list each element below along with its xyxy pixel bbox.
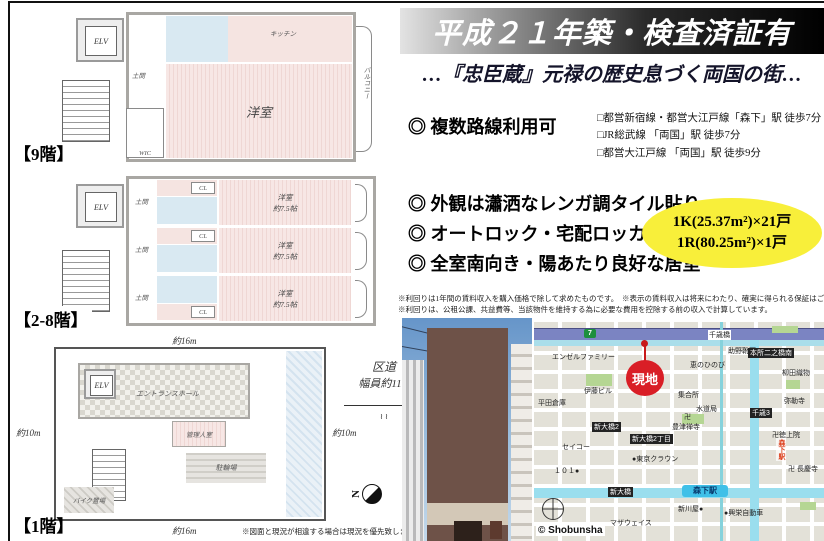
- room-name: 洋室: [278, 240, 293, 251]
- western-room: 洋室 約7.5帖: [219, 180, 351, 225]
- room-size: 約7.5帖: [273, 203, 297, 214]
- station-list: □都営新宿線・都営大江戸線「森下」駅 徒歩7分 □JR総武線 「両国」駅 徒歩7…: [597, 110, 821, 162]
- main-road-horizontal: [534, 488, 824, 498]
- bathroom-area: [166, 16, 228, 62]
- station-band-morishita: 森下駅: [682, 485, 728, 497]
- bicycle-parking-label: 駐輪場: [216, 463, 237, 473]
- western-room: 洋室 約7.5帖: [219, 228, 351, 273]
- room-name: 洋室: [278, 288, 293, 299]
- closet: CL: [191, 306, 215, 318]
- map-label: 本所二之橋南: [748, 348, 794, 358]
- map-label: １０１●: [554, 466, 579, 476]
- closet: CL: [191, 230, 215, 242]
- map-label: 平田倉庫: [538, 398, 566, 408]
- unit-row: 土間 CL 洋室 約7.5帖: [129, 228, 373, 273]
- closet-label: CL: [199, 233, 207, 240]
- disclaimer: ※利回りは1年間の賃料収入を購入価格で除して求めたものです。 ※表示の賃料収入は…: [398, 293, 824, 316]
- map-copyright: © Shobunsha: [536, 525, 605, 536]
- map-label: ●興栄自動車: [724, 508, 763, 518]
- north-label: N: [350, 490, 362, 498]
- map-label: 集合所: [678, 390, 699, 400]
- room-name: 洋室: [278, 192, 293, 203]
- feature-exterior: ◎ 外観は瀟洒なレンガ調タイル貼り: [408, 190, 701, 216]
- park-area: [586, 374, 612, 386]
- motorcycle-parking: バイク置場: [64, 487, 114, 513]
- western-room-label: 洋室: [246, 102, 272, 121]
- unit-mix-1r: 1R(80.25m²)×1戸: [677, 233, 787, 254]
- closet: CL: [191, 182, 215, 194]
- floorplan-1f: 約16m エントランスホール ELV 管理人室 駐輪場 バイク置場 約10m 約…: [14, 334, 424, 541]
- road-setback-area: [286, 351, 322, 517]
- manager-room-label: 管理人室: [186, 429, 212, 439]
- header-subtitle: …『忠臣蔵』元禄の歴史息づく両国の街…: [400, 58, 824, 87]
- neighbor-building-right: [511, 344, 532, 541]
- balcony: [355, 280, 367, 318]
- station-item: □都営大江戸線 「両国」駅 徒歩9分: [597, 145, 821, 162]
- station-item: □JR総武線 「両国」駅 徒歩7分: [597, 127, 821, 144]
- balcony-label: バルコニー: [360, 67, 370, 100]
- park-area: [800, 502, 816, 510]
- header-title: 平成２１年築・検査済証有: [432, 10, 792, 52]
- unit-row: 土間 CL 洋室 約7.5帖: [129, 276, 373, 321]
- map-label: 卍 長慶寺: [788, 464, 818, 474]
- site-pin-dot: [641, 340, 648, 347]
- bicycle-parking: 駐輪場: [186, 453, 266, 483]
- bathroom-area: [157, 197, 217, 224]
- elevator-shaft: ELV: [76, 184, 124, 228]
- manager-room: 管理人室: [172, 421, 226, 447]
- doma-label: 土間: [135, 292, 148, 302]
- floor2-8-caption: 【2-8階】: [14, 306, 92, 331]
- map-label: 新大橋: [608, 487, 633, 497]
- river: [534, 340, 824, 346]
- doma-label: 土間: [135, 196, 148, 206]
- map-label: エンゼルファミリー: [552, 352, 615, 362]
- map-label: 千歳3: [750, 408, 772, 418]
- map-label: 新大橋2: [592, 422, 621, 432]
- bathroom-area: [157, 245, 217, 272]
- disclaimer-line1: ※利回りは1年間の賃料収入を購入価格で除して求めたものです。 ※表示の賃料収入は…: [398, 293, 824, 304]
- north-arrow: N: [352, 484, 382, 504]
- compass-icon: [542, 498, 564, 520]
- unit-row: 土間 CL 洋室 約7.5帖: [129, 180, 373, 225]
- dimension-break: ≀ ≀: [377, 412, 391, 421]
- walk-in-closet: WIC: [126, 108, 164, 158]
- entrance-hall-label: エントランスホール: [136, 389, 199, 399]
- park-area: [786, 380, 800, 389]
- unit-mix-1k: 1K(25.37m²)×21戸: [673, 212, 791, 233]
- subway-line: [720, 322, 723, 541]
- building-photo: [402, 318, 532, 541]
- balcony: [355, 232, 367, 270]
- map-label: 卍: [684, 412, 691, 422]
- elevator-label: ELV: [85, 26, 117, 56]
- kitchen-label: キッチン: [270, 28, 296, 38]
- closet-label: CL: [199, 185, 207, 192]
- room-size: 約7.5帖: [273, 251, 297, 262]
- doma-label: 土間: [135, 244, 148, 254]
- station-vertical-morishita: 森下駅: [776, 438, 786, 461]
- elevator-shaft: ELV: [76, 18, 124, 62]
- balcony: [355, 184, 367, 222]
- real-estate-flyer: ELV キッチン 洋室 WIC 土間 バルコニー 【9階】 ELV 土間: [0, 0, 824, 541]
- disclaimer-line2: ※利回りは、公租公課、共益費等、当該物件を維持する為に必要な費用を控除する前の収…: [398, 304, 824, 315]
- flyer-border-left: [8, 1, 10, 541]
- kitchen-area: キッチン: [228, 16, 352, 62]
- dim-left: 約10m: [16, 426, 41, 439]
- feature-south: ◎ 全室南向き・陽あたり良好な居室: [408, 250, 701, 276]
- flyer-border-top: [8, 1, 824, 3]
- elevator-label: ELV: [90, 375, 113, 396]
- stairwell: [62, 80, 110, 142]
- site-marker: 現地: [626, 360, 664, 396]
- header-banner: 平成２１年築・検査済証有: [400, 8, 824, 54]
- map-label: 豊津禅寺: [672, 422, 700, 432]
- map-label: 柳田織物: [782, 368, 810, 378]
- map-label: 弥勒寺: [784, 396, 805, 406]
- unit-mix-highlight: 1K(25.37m²)×21戸 1R(80.25m²)×1戸: [642, 198, 822, 268]
- map-label: 新大橋2丁目: [630, 434, 673, 444]
- motorcycle-parking-label: バイク置場: [73, 495, 105, 505]
- room-size: 約7.5帖: [273, 299, 297, 310]
- dim-right: 約10m: [332, 426, 357, 439]
- route-7-shield: 7: [584, 329, 596, 338]
- location-map: 7 現地 千歳橋 助野靴下● 本所二之橋南 恵のひのび 柳田織物 エンゼルファミ…: [534, 322, 824, 541]
- floor9-caption: 【9階】: [14, 140, 74, 165]
- balcony: バルコニー: [356, 26, 372, 152]
- elevator-shaft: ELV: [84, 369, 116, 399]
- site-outline: エントランスホール ELV 管理人室 駐輪場 バイク置場: [54, 347, 326, 521]
- neighbor-building-left: [402, 360, 424, 541]
- floorplan-9f: ELV キッチン 洋室 WIC 土間 バルコニー 【9階】: [14, 8, 389, 166]
- elevator-label: ELV: [85, 192, 117, 222]
- building-door: [490, 521, 502, 539]
- map-label: マザウェイス: [610, 518, 652, 528]
- dim-top: 約16m: [172, 334, 197, 347]
- western-room: 洋室: [166, 64, 352, 158]
- floor1-caption: 【1階】: [14, 512, 74, 537]
- map-label: 水道局: [696, 404, 717, 414]
- map-label: 恵のひのび: [690, 360, 725, 370]
- map-label: 千歳橋: [708, 330, 731, 340]
- park-area: [772, 326, 798, 333]
- western-room: 洋室 約7.5帖: [219, 276, 351, 321]
- map-label: 新川屋●: [678, 504, 703, 514]
- floorplan-2-8f: ELV 土間 CL 洋室 約7.5帖 土間 CL: [14, 172, 389, 330]
- dim-bottom: 約16m: [172, 524, 197, 537]
- north-circle-icon: [362, 484, 382, 504]
- building-entrance: [454, 521, 482, 541]
- closet-label: CL: [199, 309, 207, 316]
- station-item: □都営新宿線・都営大江戸線「森下」駅 徒歩7分: [597, 110, 821, 127]
- plan-note: ※図面と現況が相違する場合は現況を優先致します: [242, 526, 415, 537]
- bathroom-area: [157, 276, 217, 303]
- doma-label: 土間: [132, 70, 145, 80]
- map-label: 伊藤ビル: [584, 386, 612, 396]
- stairwell: [62, 250, 110, 312]
- wic-label: WIC: [139, 150, 151, 157]
- map-label: ●東京クラウン: [632, 454, 678, 464]
- map-label: セイコー: [562, 442, 590, 452]
- feature-routes: ◎ 複数路線利用可: [408, 113, 557, 139]
